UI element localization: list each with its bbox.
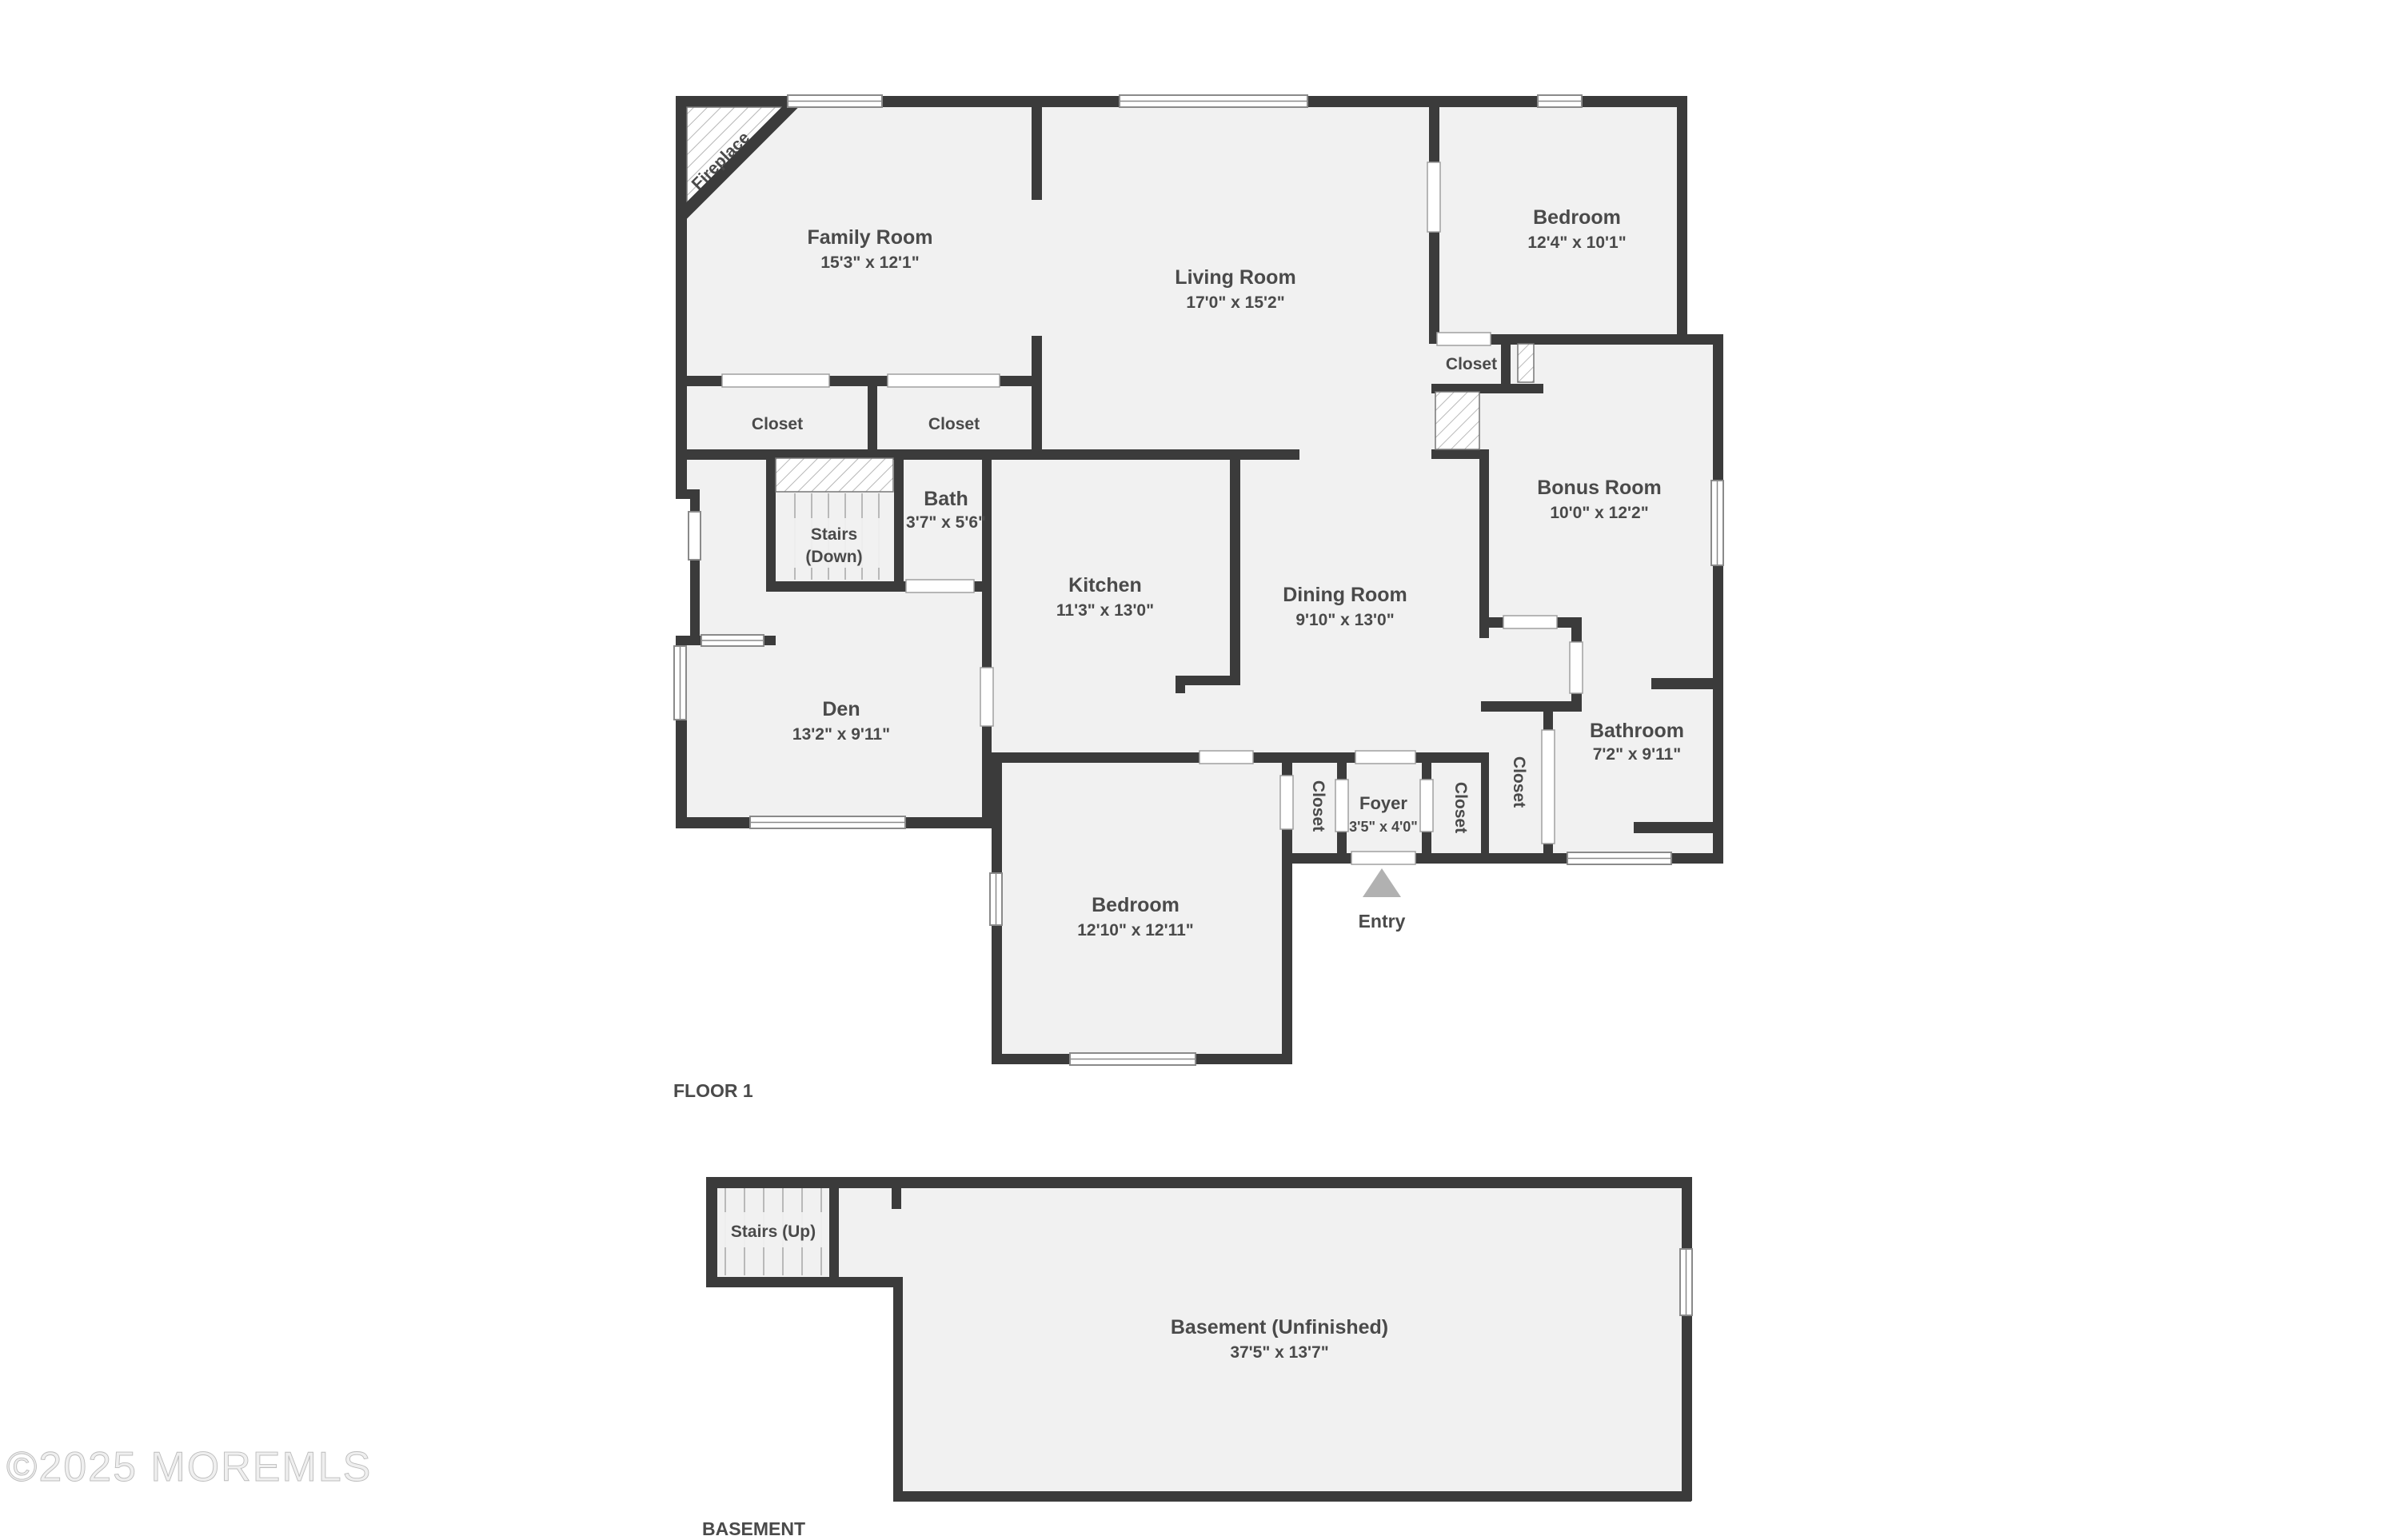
- door-opening: [1335, 780, 1348, 832]
- closet-label: Closet: [1451, 782, 1470, 833]
- stairs-up-label: Stairs (Up): [731, 1223, 816, 1241]
- basement-caption: BASEMENT: [702, 1518, 805, 1539]
- room-dims: 37'5" x 13'7": [1230, 1343, 1328, 1362]
- wall-segment: [992, 752, 1199, 763]
- room-name: Bedroom: [1533, 206, 1621, 229]
- wall-segment: [1429, 232, 1439, 344]
- door-opening: [1542, 730, 1555, 844]
- wall-segment: [1671, 853, 1723, 864]
- door-opening: [1427, 162, 1440, 232]
- wall-segment: [706, 1177, 1691, 1188]
- wall-segment: [1282, 762, 1292, 776]
- room-dims: 3'5" x 4'0": [1349, 819, 1418, 835]
- wall-segment: [676, 96, 788, 107]
- wall-segment: [706, 1177, 717, 1285]
- window: [1120, 95, 1307, 107]
- wall-segment: [882, 96, 1120, 107]
- wall-segment: [992, 1054, 1070, 1064]
- basement-windows: [1680, 1249, 1692, 1315]
- stair-landing-hatch: [776, 458, 893, 492]
- room-dims: 9'10" x 13'0": [1295, 611, 1394, 629]
- wall-segment: [1415, 752, 1489, 763]
- wall-segment: [982, 726, 992, 828]
- window: [788, 95, 882, 107]
- wall-segment: [1682, 1315, 1692, 1501]
- wall-segment: [1337, 762, 1347, 780]
- stairs-down-line2: (Down): [805, 548, 862, 566]
- wall-segment: [1307, 96, 1538, 107]
- wall-segment: [690, 499, 700, 512]
- wall-segment: [1481, 701, 1581, 712]
- wall-segment: [764, 636, 776, 645]
- room-dims: 13'2" x 9'11": [792, 725, 890, 744]
- window: [750, 816, 905, 828]
- wall-segment: [829, 1187, 839, 1277]
- room-name: Dining Room: [1283, 584, 1407, 606]
- wall-segment: [1479, 449, 1489, 638]
- wall-segment: [1481, 752, 1489, 853]
- wall-segment: [1571, 693, 1582, 712]
- wall-segment: [676, 720, 687, 828]
- wall-segment: [992, 762, 1002, 873]
- room-dims: 3'7" x 5'6": [906, 513, 986, 532]
- wall-segment: [1543, 844, 1553, 853]
- room-name: Bedroom: [1092, 894, 1180, 916]
- wall-segment: [676, 96, 687, 489]
- wall-segment: [905, 817, 992, 828]
- wall-segment: [1713, 334, 1723, 481]
- door-opening: [1437, 333, 1491, 345]
- door-opening: [1351, 852, 1415, 864]
- door-opening: [1420, 780, 1433, 832]
- window: [701, 635, 764, 646]
- wall-segment: [868, 376, 877, 460]
- door-opening: [1280, 776, 1293, 829]
- room-name: Foyer: [1359, 793, 1407, 813]
- wall-segment: [1682, 1177, 1692, 1249]
- room-dims: 12'4" x 10'1": [1527, 233, 1626, 252]
- mls-watermark: ©2025 MOREMLS: [6, 1444, 372, 1490]
- wall-segment: [1176, 676, 1185, 693]
- wall-segment: [1415, 853, 1567, 864]
- room-dims: 17'0" x 15'2": [1186, 293, 1284, 312]
- wall-segment: [1422, 832, 1431, 853]
- closet-label: Closet: [928, 415, 980, 433]
- entry-label: Entry: [1359, 911, 1406, 932]
- wall-segment: [893, 1491, 1691, 1502]
- wall-segment: [1176, 676, 1240, 685]
- door-opening: [888, 374, 1000, 387]
- door-opening: [1570, 642, 1583, 693]
- wall-segment: [894, 458, 904, 591]
- stairs-down-line1: Stairs: [811, 525, 857, 544]
- door-opening: [980, 668, 993, 726]
- floorplan-drawing: Fireplace: [0, 0, 2399, 1540]
- door-opening: [906, 580, 974, 592]
- window: [689, 512, 701, 560]
- wall-segment: [1634, 822, 1713, 833]
- door-opening: [1503, 616, 1557, 628]
- closet-label: Closet: [1510, 756, 1528, 808]
- room-name: Bath: [924, 488, 968, 510]
- wall-segment: [829, 376, 888, 386]
- wall-segment: [1677, 96, 1687, 344]
- basement-room-fills: [706, 1177, 1691, 1501]
- wall-segment: [1282, 829, 1292, 1063]
- wall-segment: [982, 591, 992, 668]
- room-dims: 10'0" x 12'2": [1550, 504, 1648, 522]
- wall-segment: [766, 581, 906, 592]
- room-name: Basement (Unfinished): [1171, 1316, 1388, 1339]
- window: [1538, 95, 1582, 107]
- wall-segment: [690, 560, 700, 636]
- wall-segment: [1431, 449, 1489, 459]
- wall-segment: [1337, 832, 1347, 853]
- door-opening: [722, 374, 829, 387]
- wall-segment: [676, 636, 701, 645]
- door-leaf-hatch: [1518, 344, 1534, 382]
- wall-segment: [676, 489, 700, 499]
- wall-segment: [893, 1277, 903, 1501]
- wall-segment: [1713, 565, 1723, 864]
- room-name: Den: [822, 698, 860, 720]
- wall-segment: [1501, 344, 1511, 384]
- wall-segment: [1557, 617, 1582, 628]
- room-name: Family Room: [808, 226, 933, 249]
- door-opening: [1355, 751, 1415, 764]
- entry-arrow-icon: [1363, 868, 1401, 897]
- window: [674, 646, 686, 720]
- floorplan-page: Fireplace: [0, 0, 2399, 1540]
- window: [1567, 852, 1671, 864]
- window: [1711, 481, 1723, 565]
- wall-segment: [1543, 712, 1553, 730]
- room-dims: 7'2" x 9'11": [1593, 745, 1682, 764]
- wall-segment: [676, 817, 750, 828]
- wall-segment: [892, 1177, 901, 1209]
- closet-label: Closet: [752, 415, 803, 433]
- wall-segment: [766, 458, 776, 581]
- wall-segment: [1196, 1054, 1292, 1064]
- wall-segment: [706, 1277, 903, 1287]
- room-name: Kitchen: [1068, 574, 1142, 596]
- wall-segment: [1491, 334, 1723, 345]
- room-name: Bonus Room: [1537, 477, 1662, 499]
- wall-segment: [1429, 106, 1439, 162]
- wall-segment: [1282, 853, 1351, 864]
- wall-segment: [676, 376, 722, 386]
- door-opening: [1199, 751, 1253, 764]
- room-name: Bathroom: [1590, 720, 1684, 742]
- wall-segment: [1032, 106, 1042, 200]
- wall-segment: [992, 925, 1002, 1063]
- window: [990, 873, 1002, 925]
- closet-label: Closet: [1446, 355, 1497, 373]
- room-dims: 11'3" x 13'0": [1056, 601, 1154, 620]
- room-name: Living Room: [1175, 266, 1295, 289]
- closet-label: Closet: [1309, 780, 1327, 832]
- wall-segment: [1422, 762, 1431, 780]
- wall-segment: [1253, 752, 1355, 763]
- floor1-caption: FLOOR 1: [673, 1080, 753, 1101]
- wall-segment: [1230, 459, 1240, 685]
- room-dims: 12'10" x 12'11": [1077, 921, 1194, 940]
- room-dims: 15'3" x 12'1": [820, 253, 919, 272]
- room-fill: [893, 1177, 1691, 1501]
- window: [1680, 1249, 1692, 1315]
- bonus-entry-hatch: [1435, 392, 1479, 449]
- wall-segment: [1582, 96, 1687, 107]
- wall-segment: [1032, 336, 1042, 460]
- wall-segment: [1651, 678, 1713, 689]
- window: [1070, 1053, 1196, 1065]
